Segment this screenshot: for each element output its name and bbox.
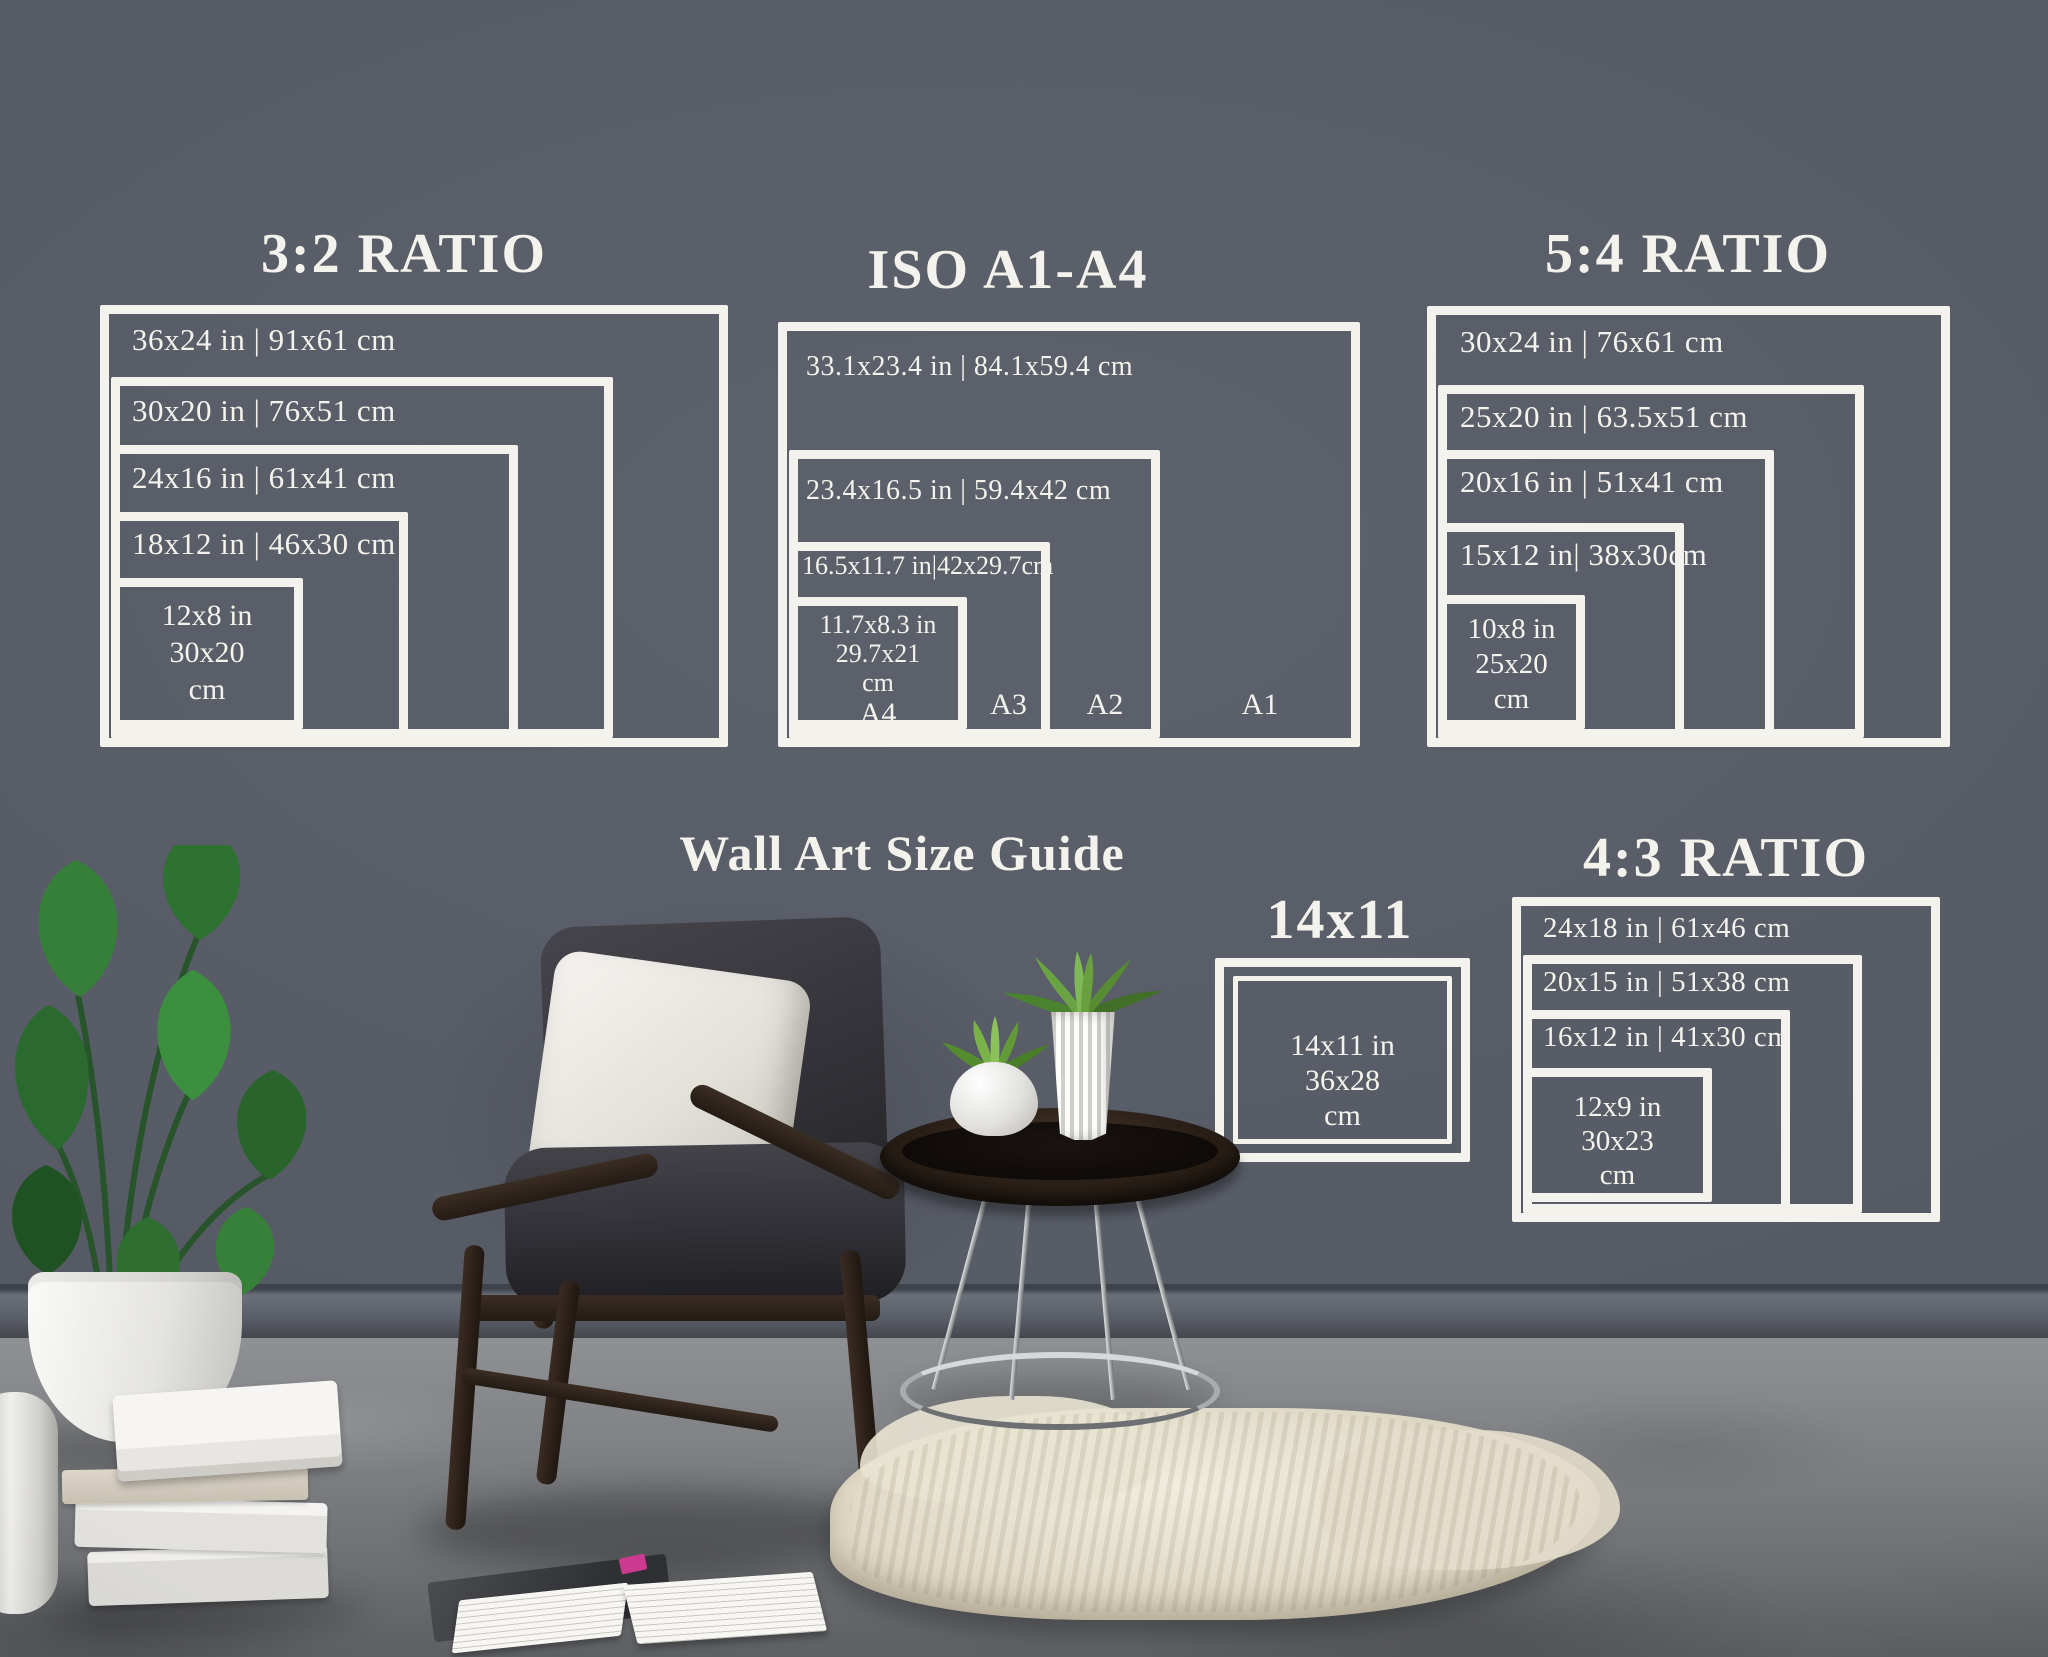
size-label: 33.1x23.4 in | 84.1x59.4 cm bbox=[806, 352, 1133, 383]
size-line: 14x11 in bbox=[1233, 1028, 1452, 1063]
size-label: 20x16 in | 51x41 cm bbox=[1460, 465, 1724, 499]
rug-fur-texture bbox=[850, 1412, 1580, 1612]
book bbox=[87, 1544, 329, 1606]
book bbox=[112, 1380, 342, 1481]
size-line: 25x20 bbox=[1438, 647, 1585, 682]
size-line: 29.7x21 bbox=[789, 639, 967, 668]
size-line: cm bbox=[1233, 1098, 1452, 1133]
size-line: 12x9 in bbox=[1523, 1090, 1712, 1124]
size-label: 20x15 in | 51x38 cm bbox=[1543, 967, 1790, 999]
size-line: 36x28 bbox=[1233, 1063, 1452, 1098]
size-line: cm bbox=[1523, 1158, 1712, 1192]
paper-roll bbox=[0, 1392, 58, 1614]
size-label: 24x18 in | 61x46 cm bbox=[1543, 913, 1790, 945]
size-label: 18x12 in | 46x30 cm bbox=[132, 527, 396, 561]
succulent-pot bbox=[950, 1062, 1038, 1136]
book bbox=[74, 1497, 327, 1554]
size-line: 10x8 in bbox=[1438, 612, 1585, 647]
chart-title-14x11: 14x11 bbox=[1190, 892, 1490, 948]
size-label-14x11: 14x11 in 36x28 cm bbox=[1233, 1028, 1452, 1133]
size-line: cm bbox=[1438, 682, 1585, 717]
size-label-10x8: 10x8 in 25x20 cm bbox=[1438, 612, 1585, 717]
size-line: 30x23 bbox=[1523, 1124, 1712, 1158]
label-a1: A1 bbox=[1160, 688, 1360, 722]
size-label: 30x20 in | 76x51 cm bbox=[132, 394, 396, 428]
size-label: 23.4x16.5 in | 59.4x42 cm bbox=[806, 476, 1111, 507]
size-label: 36x24 in | 91x61 cm bbox=[132, 323, 396, 357]
size-label: 16x12 in | 41x30 cm bbox=[1543, 1022, 1790, 1054]
size-label: 24x16 in | 61x41 cm bbox=[132, 461, 396, 495]
size-label: 15x12 in| 38x30cm bbox=[1460, 538, 1707, 572]
chair-rail bbox=[470, 1295, 880, 1321]
size-label: 16.5x11.7 in|42x29.7cm bbox=[802, 552, 1053, 581]
size-label-a4: 11.7x8.3 in 29.7x21 cm A4 bbox=[789, 610, 967, 728]
chart-title-3-2: 3:2 RATIO bbox=[154, 226, 654, 282]
table-base-ring bbox=[900, 1352, 1220, 1430]
page-title: Wall Art Size Guide bbox=[602, 828, 1202, 878]
size-label: 30x24 in | 76x61 cm bbox=[1460, 325, 1724, 359]
label-a2: A2 bbox=[1050, 688, 1160, 722]
size-line: cm bbox=[789, 668, 967, 697]
size-line: 30x20 bbox=[111, 634, 303, 671]
size-label-12x8: 12x8 in 30x20 cm bbox=[111, 597, 303, 708]
size-line: cm bbox=[111, 671, 303, 708]
chart-title-iso: ISO A1-A4 bbox=[758, 242, 1258, 298]
chart-title-5-4: 5:4 RATIO bbox=[1438, 226, 1938, 282]
room-scene: 3:2 RATIO 36x24 in | 91x61 cm 30x20 in |… bbox=[0, 0, 2048, 1657]
size-line: 11.7x8.3 in bbox=[789, 610, 967, 639]
label-a3: A3 bbox=[967, 688, 1050, 722]
chart-title-4-3: 4:3 RATIO bbox=[1476, 830, 1976, 886]
size-label-12x9: 12x9 in 30x23 cm bbox=[1523, 1090, 1712, 1192]
size-line: A4 bbox=[789, 699, 967, 728]
size-line: 12x8 in bbox=[111, 597, 303, 634]
size-label: 25x20 in | 63.5x51 cm bbox=[1460, 400, 1748, 434]
